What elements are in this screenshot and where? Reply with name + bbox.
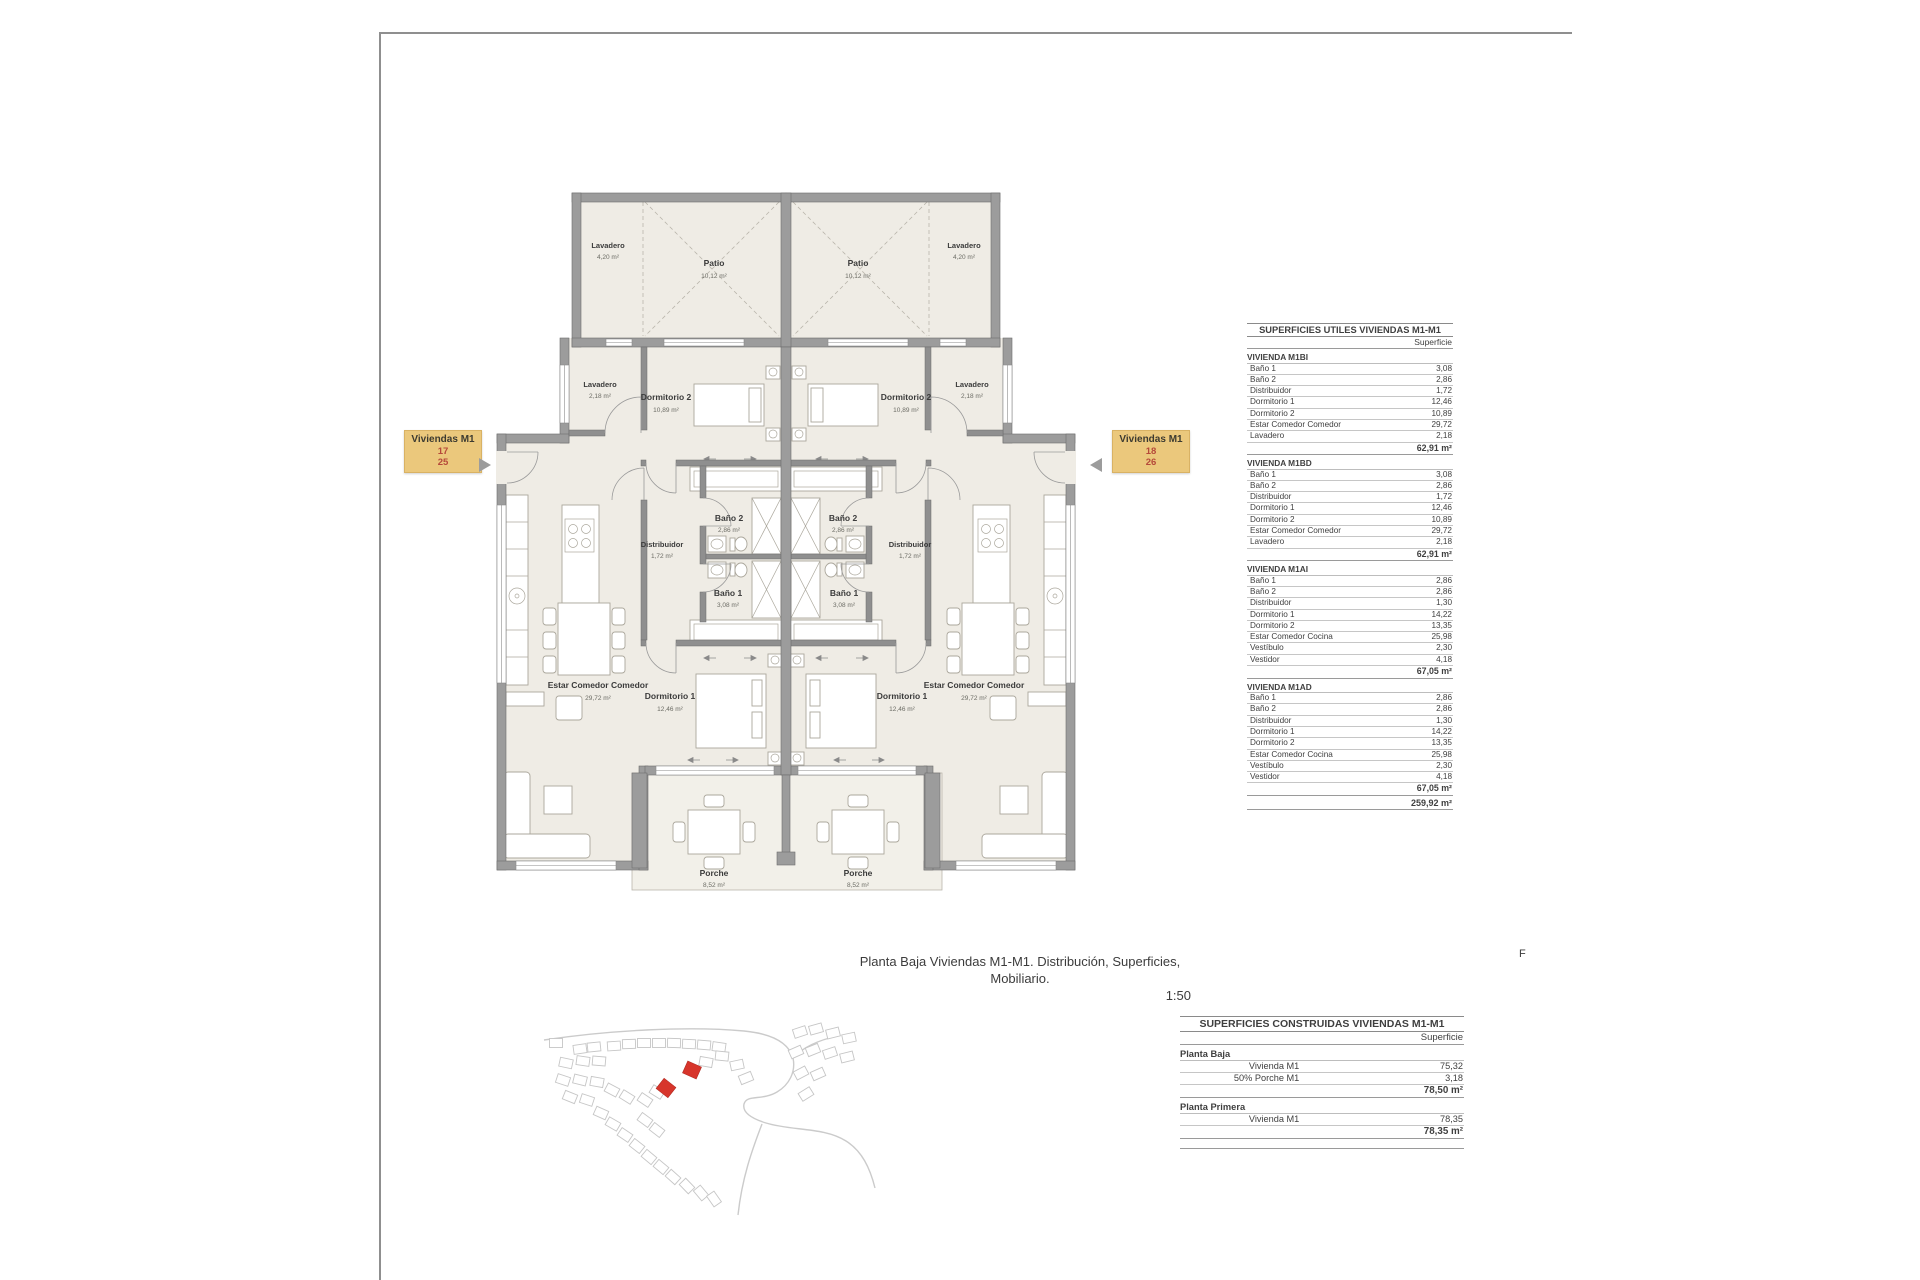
table-row: Dormitorio 114,22: [1247, 610, 1453, 621]
site-map-building: [637, 1093, 653, 1108]
table-utiles-column-header: Superficie: [1247, 337, 1453, 349]
table-row-label: Dormitorio 2: [1247, 409, 1432, 419]
room-label-dormitorio1-right: Dormitorio 1: [877, 691, 928, 701]
table-row-label: Vivienda M1: [1180, 1114, 1299, 1125]
floor-plan: Lavadero 4,20 m² Lavadero 4,20 m² Patio …: [0, 0, 1920, 1280]
table-row: Baño 22,86: [1247, 375, 1453, 386]
table-row-value: 2,18: [1436, 537, 1453, 547]
svg-text:10,12 m²: 10,12 m²: [845, 273, 871, 280]
table-row: Dormitorio 112,46: [1247, 397, 1453, 408]
table-row-label: Dormitorio 2: [1247, 621, 1432, 631]
site-map-building: [699, 1056, 713, 1067]
svg-text:29,72 m²: 29,72 m²: [961, 695, 987, 702]
table-row-value: 1,72: [1436, 492, 1453, 502]
room-label-patio-right: Patio: [848, 258, 869, 268]
table-row-value: 29,72: [1432, 420, 1454, 430]
table-row: 50% Porche M13,18: [1180, 1073, 1464, 1085]
site-map-building: [788, 1045, 804, 1059]
site-map-building: [842, 1032, 857, 1044]
room-label-porche-left: Porche: [700, 868, 729, 878]
table-row-value: 4,18: [1436, 655, 1453, 665]
site-map-building: [604, 1083, 620, 1097]
table-row-value: 78,35: [1299, 1114, 1464, 1125]
table-row-value: 12,46: [1432, 397, 1454, 407]
table-row: Baño 13,08: [1247, 470, 1453, 481]
table-row-value: 14,22: [1432, 610, 1454, 620]
room-label-dormitorio2-left: Dormitorio 2: [641, 392, 692, 402]
table-row-label: Dormitorio 1: [1247, 610, 1432, 620]
table-row: Vestíbulo2,30: [1247, 761, 1453, 772]
table-construidas-column-header: Superficie: [1180, 1032, 1464, 1045]
table-row: Baño 12,86: [1247, 693, 1453, 704]
site-map-building: [826, 1027, 841, 1039]
table-row: Distribuidor1,72: [1247, 492, 1453, 503]
site-map-building: [622, 1039, 635, 1048]
unit-tag-left-title: Viviendas M1: [405, 434, 481, 446]
svg-text:8,52 m²: 8,52 m²: [847, 882, 870, 889]
table-row: Lavadero2,18: [1247, 431, 1453, 442]
table-row-label: Distribuidor: [1247, 716, 1436, 726]
table-section-total: 67,05 m²: [1247, 666, 1453, 679]
table-row-value: 10,89: [1432, 409, 1454, 419]
table-section-header: Planta Baja: [1180, 1048, 1464, 1061]
table-row-value: 2,86: [1436, 375, 1453, 385]
table-row-value: 2,86: [1436, 704, 1453, 714]
table-utiles-grand-total: 259,92 m²: [1247, 797, 1453, 810]
table-row: Vestidor4,18: [1247, 772, 1453, 783]
site-map-building: [798, 1087, 814, 1102]
table-section: VIVIENDA M1AIBaño 12,86Baño 22,86Distrib…: [1247, 564, 1453, 678]
table-row-label: Lavadero: [1247, 537, 1436, 547]
drawing-caption: Planta Baja Viviendas M1-M1. Distribució…: [845, 953, 1195, 1004]
table-row-value: 13,35: [1432, 738, 1454, 748]
table-construidas-end-rule: [1180, 1139, 1464, 1149]
table-row-label: Dormitorio 2: [1247, 515, 1432, 525]
table-row: Distribuidor1,72: [1247, 386, 1453, 397]
table-section: VIVIENDA M1ADBaño 12,86Baño 22,86Distrib…: [1247, 682, 1453, 796]
table-row: Vivienda M178,35: [1180, 1114, 1464, 1126]
table-row: Baño 13,08: [1247, 364, 1453, 375]
site-map-building: [576, 1056, 590, 1067]
site-map-building: [579, 1094, 594, 1107]
table-row: Baño 22,86: [1247, 587, 1453, 598]
svg-text:8,52 m²: 8,52 m²: [703, 882, 726, 889]
site-map-building: [555, 1074, 570, 1087]
site-map-building: [641, 1149, 657, 1164]
unit-tag-left: Viviendas M1 17 25: [404, 430, 482, 473]
table-row-label: Vestidor: [1247, 655, 1436, 665]
table-section: Planta BajaVivienda M175,3250% Porche M1…: [1180, 1048, 1464, 1098]
site-map-building: [653, 1039, 666, 1048]
site-map-building: [559, 1057, 574, 1069]
svg-text:10,89 m²: 10,89 m²: [653, 407, 679, 414]
table-row-value: 14,22: [1432, 727, 1454, 737]
svg-text:12,46 m²: 12,46 m²: [657, 706, 683, 713]
svg-text:29,72 m²: 29,72 m²: [585, 695, 611, 702]
site-map-building: [793, 1066, 809, 1080]
table-row-label: Distribuidor: [1247, 492, 1436, 502]
table-row-label: Distribuidor: [1247, 598, 1436, 608]
table-row-label: Baño 2: [1247, 481, 1436, 491]
svg-text:2,86 m²: 2,86 m²: [718, 527, 741, 534]
table-row-label: Dormitorio 2: [1247, 738, 1432, 748]
table-row-value: 12,46: [1432, 503, 1454, 513]
table-row-value: 3,18: [1299, 1073, 1464, 1084]
room-label-bano2-left: Baño 2: [715, 513, 744, 523]
unit-tag-right-title: Viviendas M1: [1113, 434, 1189, 446]
site-map-building: [619, 1090, 635, 1105]
unit-tag-left-number-bottom: 25: [405, 457, 481, 468]
table-row-label: Dormitorio 1: [1247, 727, 1432, 737]
unit-tag-left-arrow-icon: [479, 458, 491, 472]
site-map-building: [679, 1178, 695, 1194]
room-label-lavadero-left: Lavadero: [583, 380, 617, 389]
table-row: Distribuidor1,30: [1247, 716, 1453, 727]
site-map-building: [587, 1042, 601, 1052]
site-map-building: [607, 1041, 621, 1051]
table-section-header: VIVIENDA M1AD: [1247, 682, 1453, 694]
site-map-building: [810, 1067, 826, 1081]
svg-text:10,89 m²: 10,89 m²: [893, 407, 919, 414]
table-section-header: Planta Primera: [1180, 1101, 1464, 1114]
table-row-label: Estar Comedor Comedor: [1247, 420, 1432, 430]
site-map-building: [653, 1159, 669, 1174]
room-label-estar-left: Estar Comedor Comedor: [548, 680, 649, 690]
table-row: Vestidor4,18: [1247, 655, 1453, 666]
svg-text:3,08 m²: 3,08 m²: [833, 602, 856, 609]
table-row-value: 2,30: [1436, 761, 1453, 771]
table-row: Vestíbulo2,30: [1247, 643, 1453, 654]
site-map-building: [573, 1074, 588, 1086]
svg-text:2,18 m²: 2,18 m²: [961, 393, 984, 400]
site-map-building: [617, 1128, 633, 1143]
table-row-label: Baño 1: [1247, 364, 1436, 374]
site-map-building: [822, 1047, 837, 1060]
site-map-building: [697, 1040, 711, 1050]
table-row-value: 10,89: [1432, 515, 1454, 525]
site-map-building: [649, 1122, 665, 1137]
room-label-lavadero-right: Lavadero: [955, 380, 989, 389]
table-row-label: Dormitorio 1: [1247, 397, 1432, 407]
room-label-dormitorio2-right: Dormitorio 2: [881, 392, 932, 402]
table-row-label: Baño 1: [1247, 470, 1436, 480]
site-map-building: [638, 1039, 651, 1048]
site-plan-map: [544, 1023, 875, 1215]
table-row-value: 1,72: [1436, 386, 1453, 396]
table-row: Dormitorio 210,89: [1247, 409, 1453, 420]
table-row-value: 2,86: [1436, 693, 1453, 703]
site-map-building: [707, 1191, 722, 1207]
table-row-label: Lavadero: [1247, 431, 1436, 441]
drawing-caption-line1: Planta Baja Viviendas M1-M1. Distribució…: [845, 953, 1195, 987]
site-map-building: [593, 1106, 609, 1120]
table-row-label: Vestíbulo: [1247, 761, 1436, 771]
table-row: Lavadero2,18: [1247, 537, 1453, 548]
svg-text:10,12 m²: 10,12 m²: [701, 273, 727, 280]
table-section-total: 78,35 m²: [1180, 1126, 1464, 1140]
svg-text:2,86 m²: 2,86 m²: [832, 527, 855, 534]
svg-text:2,18 m²: 2,18 m²: [589, 393, 612, 400]
svg-text:4,20 m²: 4,20 m²: [953, 254, 976, 261]
table-superficies-construidas: SUPERFICIES CONSTRUIDAS VIVIENDAS M1-M1 …: [1180, 1016, 1464, 1149]
site-map-building: [629, 1138, 645, 1153]
unit-tag-left-number-top: 17: [405, 446, 481, 457]
site-map-building: [562, 1090, 577, 1103]
table-row: Distribuidor1,30: [1247, 598, 1453, 609]
table-row: Dormitorio 213,35: [1247, 621, 1453, 632]
svg-text:4,20 m²: 4,20 m²: [597, 254, 620, 261]
table-section-header: VIVIENDA M1AI: [1247, 564, 1453, 576]
unit-tag-right: Viviendas M1 18 26: [1112, 430, 1190, 473]
table-row: Estar Comedor Cocina25,98: [1247, 632, 1453, 643]
table-section-total: 62,91 m²: [1247, 443, 1453, 456]
table-utiles-sections: VIVIENDA M1BIBaño 13,08Baño 22,86Distrib…: [1247, 352, 1453, 796]
room-label-distribuidor-left: Distribuidor: [641, 540, 684, 549]
table-section-total: 62,91 m²: [1247, 549, 1453, 562]
table-row-label: Baño 2: [1247, 704, 1436, 714]
table-row-value: 2,86: [1436, 587, 1453, 597]
table-row: Baño 22,86: [1247, 481, 1453, 492]
site-map-building: [715, 1051, 729, 1061]
svg-text:1,72 m²: 1,72 m²: [899, 553, 922, 560]
table-row-label: Distribuidor: [1247, 386, 1436, 396]
site-map-building: [637, 1113, 653, 1128]
table-row: Dormitorio 210,89: [1247, 515, 1453, 526]
table-section-header: VIVIENDA M1BI: [1247, 352, 1453, 364]
plan-sheet: { "sheet": { "caption_line1": "Planta Ba…: [0, 0, 1920, 1280]
room-label-bano1-left: Baño 1: [714, 588, 743, 598]
sheet-corner-mark: F: [1519, 948, 1526, 960]
table-row-label: Baño 2: [1247, 587, 1436, 597]
table-row-value: 2,30: [1436, 643, 1453, 653]
table-row-value: 3,08: [1436, 470, 1453, 480]
table-row: Dormitorio 213,35: [1247, 738, 1453, 749]
site-map-building: [792, 1026, 807, 1039]
table-row-value: 2,86: [1436, 481, 1453, 491]
site-map-building: [805, 1043, 820, 1056]
room-label-lavadero-patio-right: Lavadero: [947, 241, 981, 250]
table-row-label: Estar Comedor Cocina: [1247, 750, 1432, 760]
table-row-value: 29,72: [1432, 526, 1454, 536]
site-map-building: [693, 1185, 708, 1201]
site-map-building: [667, 1038, 680, 1047]
svg-text:3,08 m²: 3,08 m²: [717, 602, 740, 609]
site-map-building: [592, 1056, 606, 1066]
table-construidas-sections: Planta BajaVivienda M175,3250% Porche M1…: [1180, 1048, 1464, 1139]
table-utiles-title: SUPERFICIES UTILES VIVIENDAS M1-M1: [1247, 323, 1453, 337]
site-map-building: [682, 1039, 695, 1049]
table-row: Estar Comedor Comedor29,72: [1247, 420, 1453, 431]
table-row-label: 50% Porche M1: [1180, 1073, 1299, 1084]
table-row-label: Estar Comedor Comedor: [1247, 526, 1432, 536]
table-row-label: Baño 2: [1247, 375, 1436, 385]
site-map-building: [605, 1117, 621, 1131]
table-row-value: 25,98: [1432, 632, 1454, 642]
site-map-building: [550, 1039, 563, 1048]
table-construidas-title: SUPERFICIES CONSTRUIDAS VIVIENDAS M1-M1: [1180, 1016, 1464, 1032]
room-label-estar-right: Estar Comedor Comedor: [924, 680, 1025, 690]
table-row-value: 1,30: [1436, 598, 1453, 608]
table-row-value: 75,32: [1299, 1061, 1464, 1072]
table-row: Vivienda M175,32: [1180, 1061, 1464, 1073]
table-row-value: 13,35: [1432, 621, 1454, 631]
svg-text:12,46 m²: 12,46 m²: [889, 706, 915, 713]
table-row-label: Vestíbulo: [1247, 643, 1436, 653]
room-label-bano2-right: Baño 2: [829, 513, 858, 523]
unit-tag-right-arrow-icon: [1090, 458, 1102, 472]
table-row-value: 25,98: [1432, 750, 1454, 760]
table-section: VIVIENDA M1BDBaño 13,08Baño 22,86Distrib…: [1247, 458, 1453, 561]
room-label-bano1-right: Baño 1: [830, 588, 859, 598]
table-section-header: VIVIENDA M1BD: [1247, 458, 1453, 470]
site-map-building: [665, 1169, 681, 1184]
site-map-building: [840, 1051, 855, 1063]
table-row-value: 3,08: [1436, 364, 1453, 374]
room-label-distribuidor-right: Distribuidor: [889, 540, 932, 549]
drawing-scale: 1:50: [845, 987, 1195, 1004]
table-row-label: Dormitorio 1: [1247, 503, 1432, 513]
room-label-patio-left: Patio: [704, 258, 725, 268]
table-section-total: 78,50 m²: [1180, 1085, 1464, 1099]
table-row: Dormitorio 114,22: [1247, 727, 1453, 738]
table-row: Baño 22,86: [1247, 704, 1453, 715]
site-map-building: [809, 1023, 824, 1035]
table-row-value: 1,30: [1436, 716, 1453, 726]
table-row-label: Estar Comedor Cocina: [1247, 632, 1432, 642]
site-map-building: [590, 1076, 604, 1087]
table-section: Planta PrimeraVivienda M178,3578,35 m²: [1180, 1101, 1464, 1139]
table-row-label: Baño 1: [1247, 693, 1436, 703]
table-row-value: 2,86: [1436, 576, 1453, 586]
unit-tag-right-number-top: 18: [1113, 446, 1189, 457]
table-section-total: 67,05 m²: [1247, 783, 1453, 796]
svg-text:1,72 m²: 1,72 m²: [651, 553, 674, 560]
site-map-building: [738, 1071, 753, 1084]
table-row-value: 4,18: [1436, 772, 1453, 782]
table-row: Estar Comedor Comedor29,72: [1247, 526, 1453, 537]
table-row: Dormitorio 112,46: [1247, 503, 1453, 514]
site-map-building: [730, 1059, 745, 1071]
room-label-lavadero-patio-left: Lavadero: [591, 241, 625, 250]
table-row-label: Vestidor: [1247, 772, 1436, 782]
table-section: VIVIENDA M1BIBaño 13,08Baño 22,86Distrib…: [1247, 352, 1453, 455]
room-label-dormitorio1-left: Dormitorio 1: [645, 691, 696, 701]
table-superficies-utiles: SUPERFICIES UTILES VIVIENDAS M1-M1 Super…: [1247, 323, 1453, 810]
room-label-porche-right: Porche: [844, 868, 873, 878]
table-row-label: Baño 1: [1247, 576, 1436, 586]
unit-tag-right-number-bottom: 26: [1113, 457, 1189, 468]
site-map-building: [573, 1044, 587, 1055]
table-row: Estar Comedor Cocina25,98: [1247, 750, 1453, 761]
table-row: Baño 12,86: [1247, 576, 1453, 587]
table-row-label: Vivienda M1: [1180, 1061, 1299, 1072]
table-row-value: 2,18: [1436, 431, 1453, 441]
